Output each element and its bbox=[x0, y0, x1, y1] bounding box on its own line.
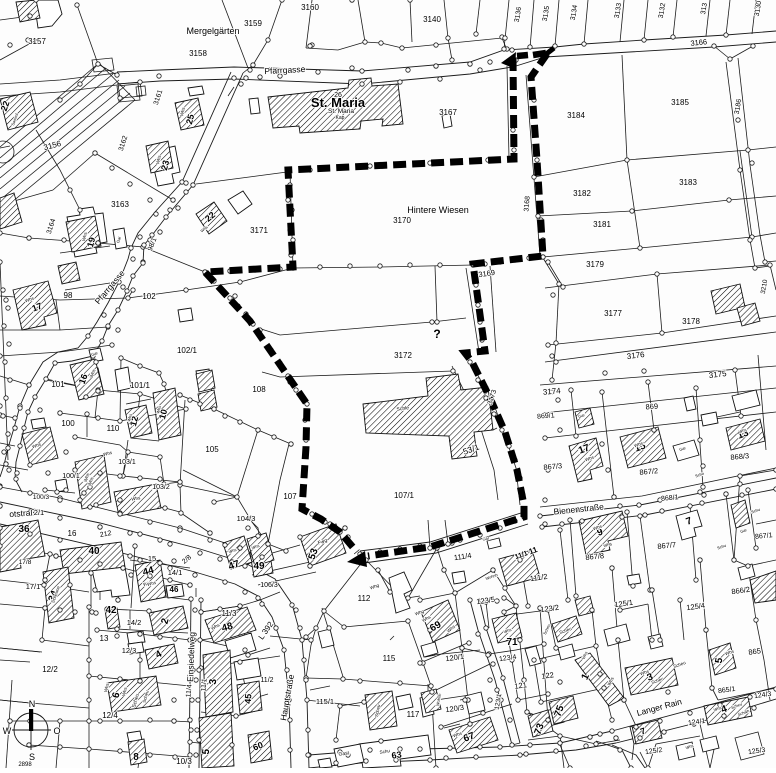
svg-text:103/1: 103/1 bbox=[118, 459, 136, 466]
svg-text:St. Maria: St. Maria bbox=[328, 108, 354, 115]
svg-text:71: 71 bbox=[506, 637, 518, 648]
svg-text:3174: 3174 bbox=[543, 386, 562, 397]
svg-text:12/2: 12/2 bbox=[42, 665, 58, 674]
svg-text:42: 42 bbox=[105, 605, 117, 616]
svg-text:3178: 3178 bbox=[682, 317, 700, 326]
svg-text:3185: 3185 bbox=[671, 98, 689, 107]
svg-text:36: 36 bbox=[18, 524, 30, 535]
svg-text:3168: 3168 bbox=[523, 196, 531, 212]
svg-text:15: 15 bbox=[148, 554, 156, 563]
svg-text:101/1: 101/1 bbox=[130, 381, 151, 390]
svg-text:102: 102 bbox=[142, 292, 156, 301]
svg-text:867/2: 867/2 bbox=[639, 466, 658, 477]
svg-text:121: 121 bbox=[514, 680, 528, 691]
svg-text:O: O bbox=[53, 726, 60, 736]
svg-text:2898: 2898 bbox=[18, 762, 32, 768]
svg-text:13: 13 bbox=[100, 634, 109, 643]
svg-text:117: 117 bbox=[407, 710, 420, 719]
svg-text:Mergelgärten: Mergelgärten bbox=[186, 26, 239, 36]
svg-text:115: 115 bbox=[383, 654, 396, 663]
svg-text:N: N bbox=[29, 699, 36, 709]
svg-text:112: 112 bbox=[358, 594, 371, 603]
svg-text:?: ? bbox=[433, 327, 440, 341]
svg-text:Einsiedelweg: Einsiedelweg bbox=[185, 631, 197, 682]
svg-text:103/2: 103/2 bbox=[152, 484, 170, 491]
svg-text:17/8: 17/8 bbox=[19, 559, 32, 566]
svg-text:868/3: 868/3 bbox=[730, 451, 749, 462]
svg-text:106/3: 106/3 bbox=[260, 582, 278, 589]
svg-text:46: 46 bbox=[170, 585, 179, 594]
svg-text:12/4: 12/4 bbox=[102, 711, 118, 720]
svg-text:14/2: 14/2 bbox=[127, 618, 142, 627]
svg-text:122: 122 bbox=[541, 670, 555, 681]
svg-text:S: S bbox=[29, 752, 35, 762]
svg-text:Kap: Kap bbox=[336, 115, 345, 121]
svg-text:63: 63 bbox=[391, 749, 402, 760]
svg-text:3167: 3167 bbox=[439, 108, 457, 117]
svg-text:3159: 3159 bbox=[244, 19, 262, 28]
svg-text:865: 865 bbox=[748, 646, 762, 657]
svg-text:8: 8 bbox=[133, 752, 139, 763]
svg-text:17/1: 17/1 bbox=[26, 582, 41, 591]
svg-text:108: 108 bbox=[252, 385, 266, 394]
svg-text:115/1: 115/1 bbox=[316, 697, 334, 706]
svg-text:3182: 3182 bbox=[573, 189, 591, 198]
svg-text:3172: 3172 bbox=[394, 351, 412, 360]
svg-text:107: 107 bbox=[283, 492, 297, 501]
svg-text:2/1: 2/1 bbox=[34, 508, 44, 517]
svg-text:100: 100 bbox=[61, 419, 75, 428]
svg-text:3158: 3158 bbox=[189, 49, 207, 58]
svg-text:3181: 3181 bbox=[593, 220, 611, 229]
svg-text:3160: 3160 bbox=[301, 3, 319, 12]
svg-text:3163: 3163 bbox=[111, 200, 129, 209]
svg-text:45: 45 bbox=[243, 693, 254, 704]
svg-text:107/1: 107/1 bbox=[394, 491, 415, 500]
svg-text:40: 40 bbox=[88, 546, 100, 557]
svg-text:100/3: 100/3 bbox=[33, 494, 50, 501]
svg-text:11/4: 11/4 bbox=[185, 684, 193, 698]
svg-text:3171: 3171 bbox=[250, 226, 268, 235]
svg-text:98: 98 bbox=[64, 291, 73, 300]
svg-text:101: 101 bbox=[51, 380, 65, 389]
svg-text:14/1: 14/1 bbox=[168, 568, 183, 577]
svg-text:12/3: 12/3 bbox=[122, 646, 137, 655]
svg-text:3140: 3140 bbox=[423, 15, 441, 24]
svg-text:Hintere Wiesen: Hintere Wiesen bbox=[407, 205, 469, 215]
svg-text:10/3: 10/3 bbox=[176, 757, 192, 766]
svg-text:102/1: 102/1 bbox=[177, 346, 198, 355]
svg-text:49: 49 bbox=[253, 561, 265, 572]
svg-text:11/3: 11/3 bbox=[222, 609, 238, 618]
svg-text:869: 869 bbox=[645, 401, 658, 411]
svg-text:105: 105 bbox=[205, 445, 219, 454]
svg-text:110: 110 bbox=[107, 424, 120, 433]
svg-text:16: 16 bbox=[68, 529, 77, 538]
svg-text:104/3: 104/3 bbox=[237, 514, 256, 523]
svg-text:3184: 3184 bbox=[567, 111, 585, 120]
svg-text:3179: 3179 bbox=[586, 260, 604, 269]
svg-text:W: W bbox=[3, 726, 12, 736]
svg-text:3183: 3183 bbox=[679, 178, 697, 187]
svg-text:3170: 3170 bbox=[393, 216, 411, 225]
svg-text:3166: 3166 bbox=[690, 37, 708, 48]
svg-text:3177: 3177 bbox=[604, 309, 622, 318]
svg-text:3157: 3157 bbox=[28, 37, 46, 46]
svg-text:100/1: 100/1 bbox=[62, 473, 80, 480]
svg-text:867/3: 867/3 bbox=[543, 461, 562, 472]
svg-text:11/2: 11/2 bbox=[260, 677, 273, 684]
